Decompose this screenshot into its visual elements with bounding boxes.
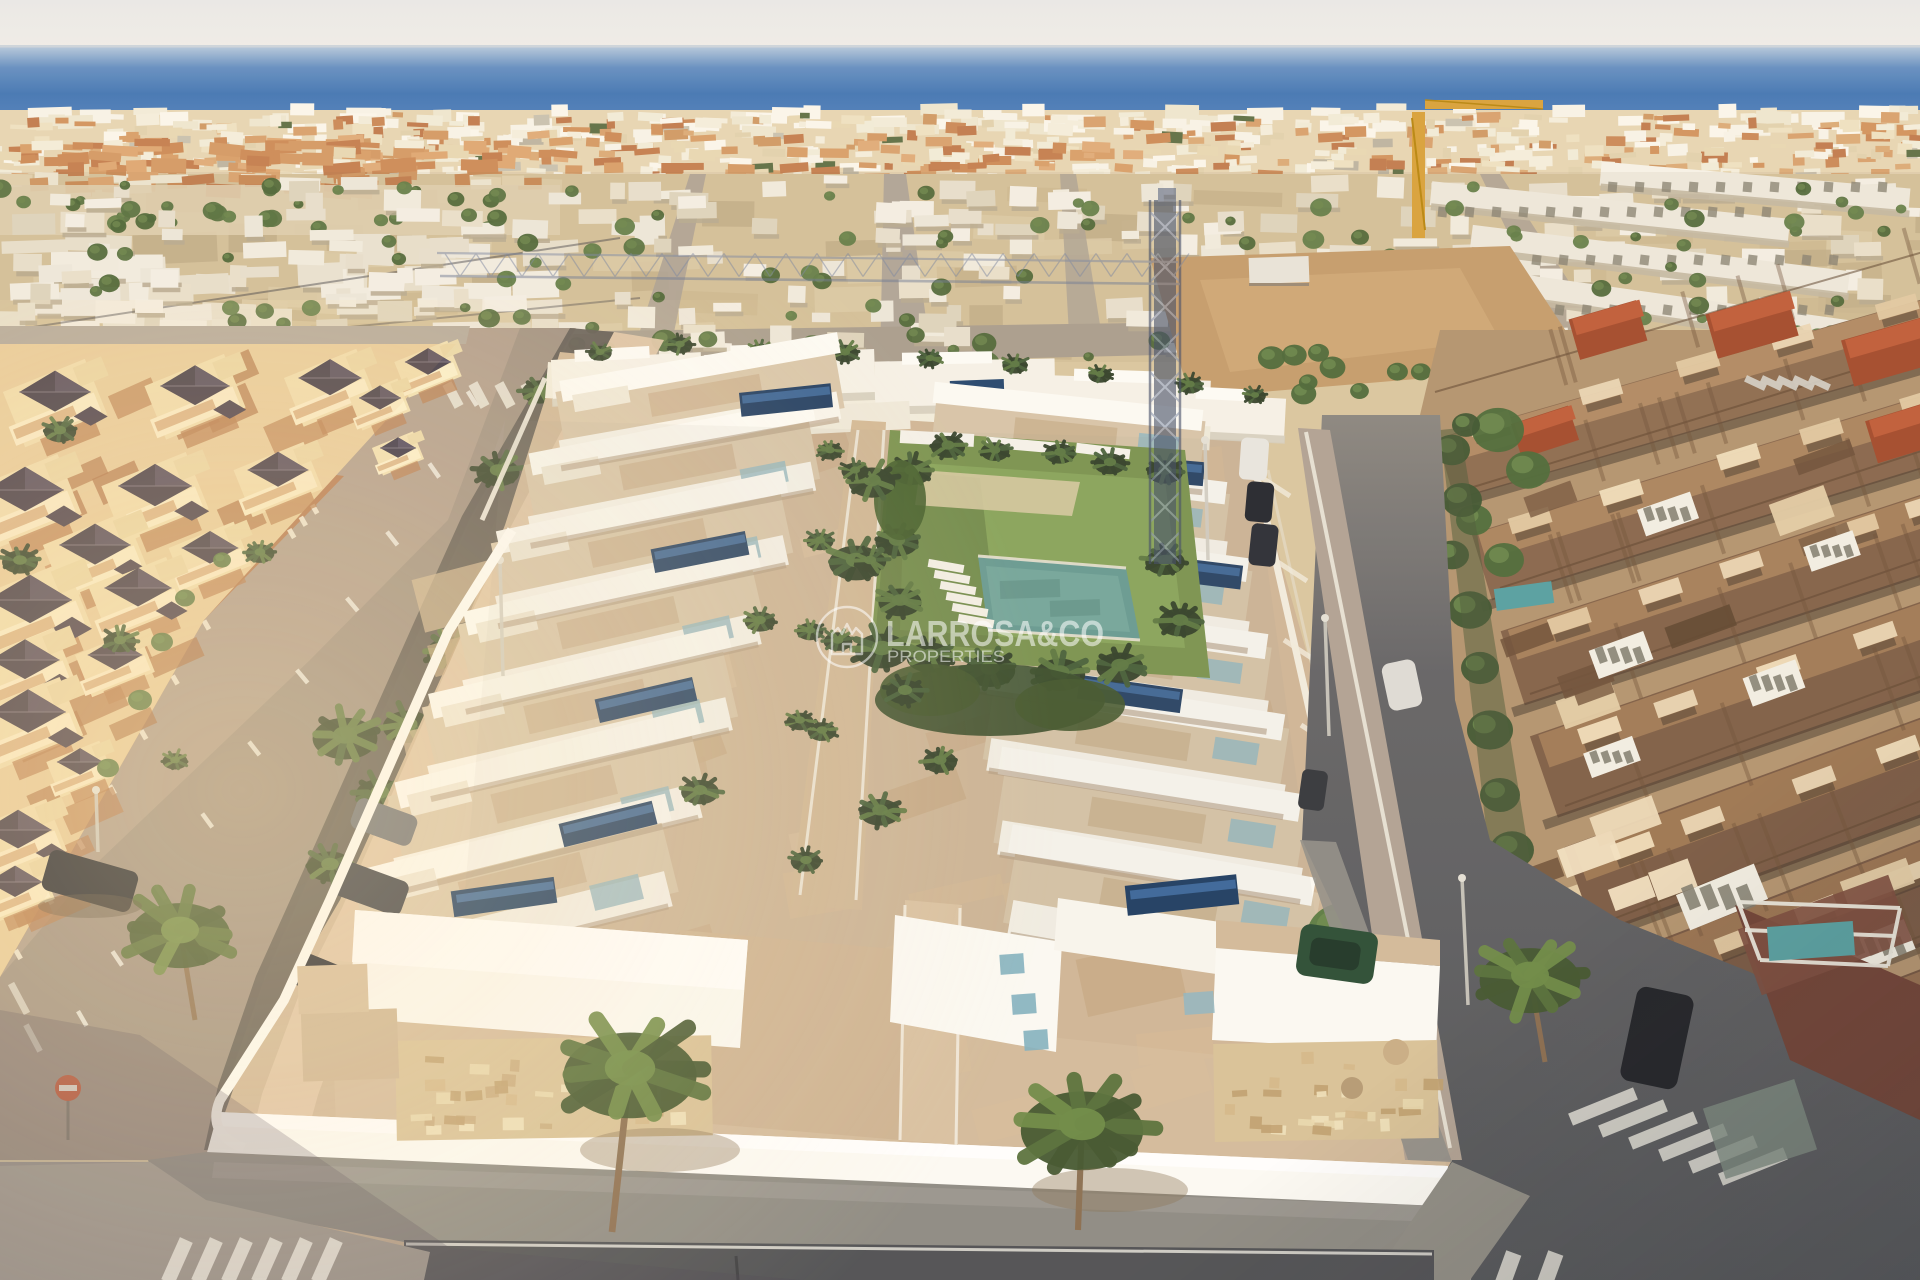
svg-text:PROPERTIES: PROPERTIES — [887, 648, 1005, 666]
